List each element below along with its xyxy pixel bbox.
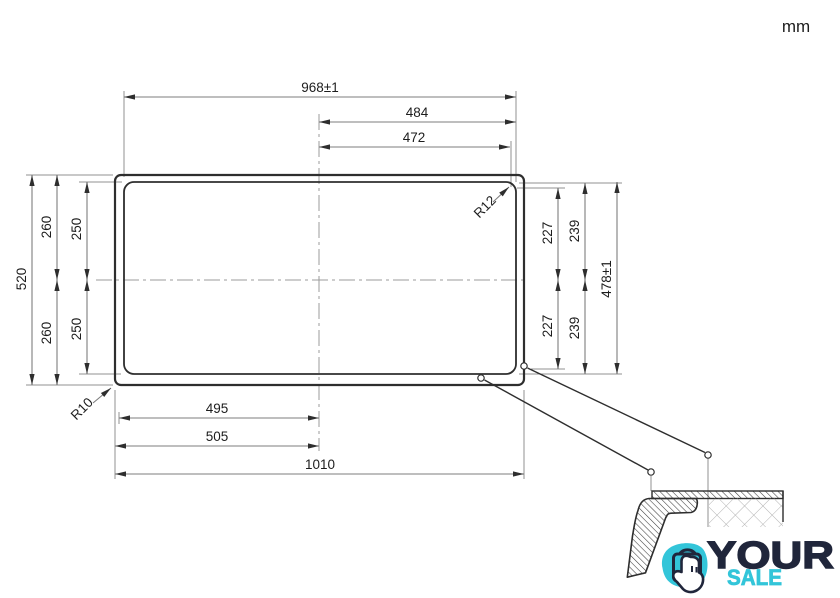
dim-label: 472 bbox=[403, 130, 426, 145]
dim-label: 227 bbox=[540, 315, 555, 338]
dim-bottom-overall: 1010 bbox=[115, 457, 524, 474]
dim-label: 484 bbox=[406, 105, 429, 120]
centerlines bbox=[96, 114, 528, 451]
dim-left-bottom-outer: 260 bbox=[39, 280, 57, 385]
dim-top-overall: 968±1 bbox=[124, 80, 516, 97]
dim-label: 227 bbox=[540, 222, 555, 245]
leader-point bbox=[705, 452, 711, 458]
dim-label: 520 bbox=[14, 268, 29, 291]
logo-word-bottom: SALE bbox=[727, 565, 782, 590]
dim-label: 495 bbox=[206, 401, 229, 416]
dim-right-overall: 478±1 bbox=[599, 182, 617, 374]
dim-top-half-inner: 472 bbox=[319, 130, 510, 147]
leader-point bbox=[521, 363, 527, 369]
dim-label: 478±1 bbox=[599, 260, 614, 297]
dim-label: 250 bbox=[69, 318, 84, 341]
dim-label: 239 bbox=[567, 317, 582, 340]
extension-lines bbox=[26, 91, 708, 527]
technical-drawing: mm 968±1 484 472 bbox=[0, 0, 840, 598]
radius-label: R10 bbox=[68, 395, 96, 423]
dim-label: 260 bbox=[39, 216, 54, 239]
drawing-canvas: mm 968±1 484 472 bbox=[0, 0, 840, 598]
leader-point bbox=[648, 469, 654, 475]
dim-left-top-inner: 250 bbox=[69, 182, 87, 280]
dim-label: 505 bbox=[206, 429, 229, 444]
dim-left-top-outer: 260 bbox=[39, 175, 57, 280]
sink-bowl-edge bbox=[124, 182, 516, 374]
countertop-section bbox=[709, 499, 783, 528]
dim-bottom-half-outer: 505 bbox=[115, 429, 319, 446]
dim-label: 968±1 bbox=[301, 80, 338, 95]
radius-label: R12 bbox=[471, 193, 499, 221]
dim-bottom-half-inner: 495 bbox=[119, 401, 319, 418]
dim-right-bottom-outer: 239 bbox=[567, 280, 585, 374]
dim-label: 239 bbox=[567, 220, 582, 243]
dim-right-top-outer: 239 bbox=[567, 183, 585, 280]
dim-label: 260 bbox=[39, 322, 54, 345]
your-sale-logo: YOUR SALE bbox=[662, 535, 834, 592]
units-label: mm bbox=[782, 17, 810, 36]
detail-leaders bbox=[478, 363, 711, 475]
dim-top-half-outer: 484 bbox=[319, 105, 516, 122]
radius-callout-inner: R12 bbox=[471, 187, 509, 221]
dim-left-bottom-inner: 250 bbox=[69, 280, 87, 374]
dim-label: 1010 bbox=[305, 457, 335, 472]
dim-label: 250 bbox=[69, 218, 84, 241]
dim-left-overall: 520 bbox=[14, 175, 32, 385]
sink-flange-section bbox=[652, 491, 783, 499]
radius-callout-outer: R10 bbox=[68, 388, 111, 423]
dim-right-bottom-inner: 227 bbox=[540, 280, 558, 369]
leader-point bbox=[478, 375, 484, 381]
dim-right-top-inner: 227 bbox=[540, 188, 558, 280]
